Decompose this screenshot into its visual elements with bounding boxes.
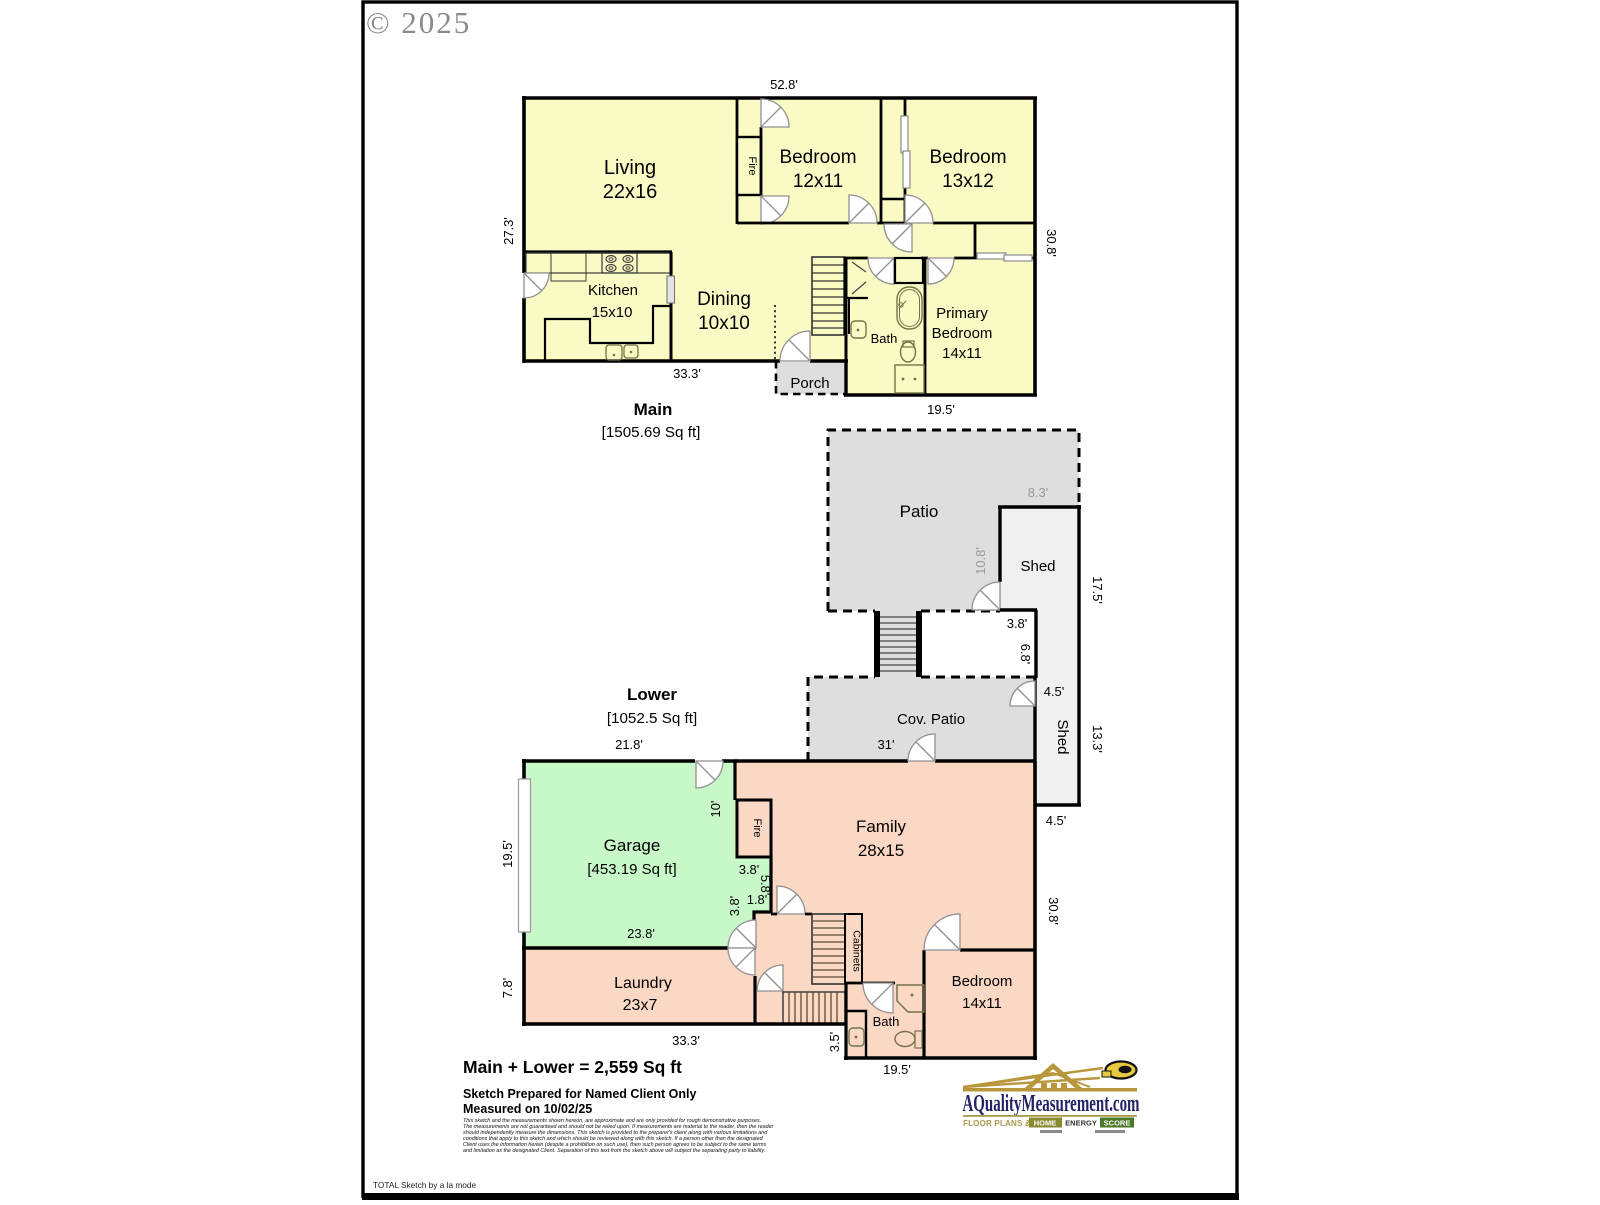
- svg-text:Fire: Fire: [751, 819, 763, 838]
- svg-text:TOTAL Sketch by a la mode: TOTAL Sketch by a la mode: [373, 1180, 477, 1190]
- svg-text:Cov. Patio: Cov. Patio: [897, 711, 965, 728]
- svg-text:Laundry: Laundry: [614, 975, 672, 992]
- svg-text:33.3': 33.3': [673, 366, 701, 381]
- svg-text:13x12: 13x12: [942, 171, 994, 192]
- svg-text:1.8': 1.8': [747, 892, 768, 907]
- svg-text:14x11: 14x11: [942, 345, 982, 362]
- svg-text:12x11: 12x11: [793, 171, 843, 192]
- svg-text:23x7: 23x7: [623, 997, 658, 1014]
- svg-text:22x16: 22x16: [603, 181, 658, 203]
- svg-text:3.8': 3.8': [727, 896, 742, 917]
- svg-text:Measured on 10/02/25: Measured on 10/02/25: [463, 1102, 592, 1116]
- svg-text:Main: Main: [634, 400, 673, 419]
- svg-text:30.8': 30.8': [1044, 229, 1059, 257]
- svg-text:Main + Lower = 2,559 Sq ft: Main + Lower = 2,559 Sq ft: [463, 1057, 682, 1077]
- svg-text:Primary: Primary: [936, 305, 988, 322]
- svg-text:Cabinets: Cabinets: [851, 930, 863, 971]
- svg-text:[1052.5 Sq ft]: [1052.5 Sq ft]: [607, 710, 697, 727]
- svg-text:FLOOR PLANS &: FLOOR PLANS &: [963, 1119, 1031, 1128]
- svg-text:7.8': 7.8': [500, 978, 515, 999]
- svg-text:[453.19 Sq ft]: [453.19 Sq ft]: [587, 861, 676, 878]
- svg-text:10': 10': [708, 801, 723, 818]
- svg-text:52.8': 52.8': [770, 77, 798, 92]
- svg-text:19.5': 19.5': [500, 840, 515, 868]
- svg-text:Living: Living: [604, 157, 656, 179]
- svg-text:10x10: 10x10: [698, 313, 750, 334]
- svg-text:SCORE: SCORE: [1104, 1119, 1131, 1128]
- svg-text:19.5': 19.5': [883, 1062, 911, 1077]
- svg-text:8.3': 8.3': [1028, 485, 1049, 500]
- svg-text:21.8': 21.8': [615, 737, 643, 752]
- svg-text:Bath: Bath: [871, 331, 898, 346]
- svg-text:27.3': 27.3': [501, 217, 516, 245]
- svg-text:HOME: HOME: [1034, 1119, 1057, 1128]
- svg-text:Bedroom: Bedroom: [779, 147, 856, 168]
- svg-text:3.8': 3.8': [739, 862, 760, 877]
- svg-text:Shed: Shed: [1054, 719, 1071, 754]
- svg-text:Lower: Lower: [627, 685, 677, 704]
- svg-text:33.3': 33.3': [672, 1033, 700, 1048]
- svg-text:Bedroom: Bedroom: [932, 325, 993, 342]
- svg-text:Dining: Dining: [697, 289, 751, 310]
- svg-text:14x11: 14x11: [962, 995, 1002, 1012]
- svg-text:Family: Family: [856, 817, 907, 836]
- svg-text:[1505.69 Sq ft]: [1505.69 Sq ft]: [602, 424, 701, 441]
- svg-text:Garage: Garage: [604, 836, 661, 855]
- svg-text:13.3': 13.3': [1090, 725, 1105, 753]
- svg-text:ENERGY: ENERGY: [1065, 1119, 1097, 1128]
- svg-text:AQualityMeasurement.com: AQualityMeasurement.com: [963, 1091, 1140, 1117]
- svg-text:Patio: Patio: [900, 502, 939, 521]
- svg-text:Fire: Fire: [746, 157, 758, 176]
- svg-text:Bath: Bath: [873, 1014, 900, 1029]
- svg-text:4.5': 4.5': [1046, 813, 1067, 828]
- svg-text:4.5': 4.5': [1044, 684, 1065, 699]
- svg-text:and limitation as the designat: and limitation as the designated Client.…: [463, 1148, 765, 1154]
- svg-text:10.8': 10.8': [973, 547, 988, 575]
- svg-text:Kitchen: Kitchen: [588, 282, 638, 299]
- svg-text:© 2025: © 2025: [366, 5, 471, 40]
- svg-text:31': 31': [878, 737, 895, 752]
- svg-text:Sketch Prepared for Named Clie: Sketch Prepared for Named Client Only: [463, 1087, 696, 1101]
- svg-text:Bedroom: Bedroom: [929, 147, 1006, 168]
- svg-text:19.5': 19.5': [927, 402, 955, 417]
- svg-text:23.8': 23.8': [627, 926, 655, 941]
- svg-text:28x15: 28x15: [858, 841, 904, 860]
- svg-text:3.5': 3.5': [827, 1032, 842, 1053]
- svg-text:15x10: 15x10: [592, 304, 633, 321]
- svg-text:6.8': 6.8': [1018, 644, 1033, 665]
- svg-text:30.8': 30.8': [1046, 897, 1061, 925]
- svg-text:Porch: Porch: [790, 375, 829, 392]
- svg-text:Shed: Shed: [1020, 558, 1055, 575]
- svg-text:Bedroom: Bedroom: [952, 973, 1013, 990]
- svg-text:17.5': 17.5': [1090, 576, 1105, 604]
- svg-text:3.8': 3.8': [1007, 616, 1028, 631]
